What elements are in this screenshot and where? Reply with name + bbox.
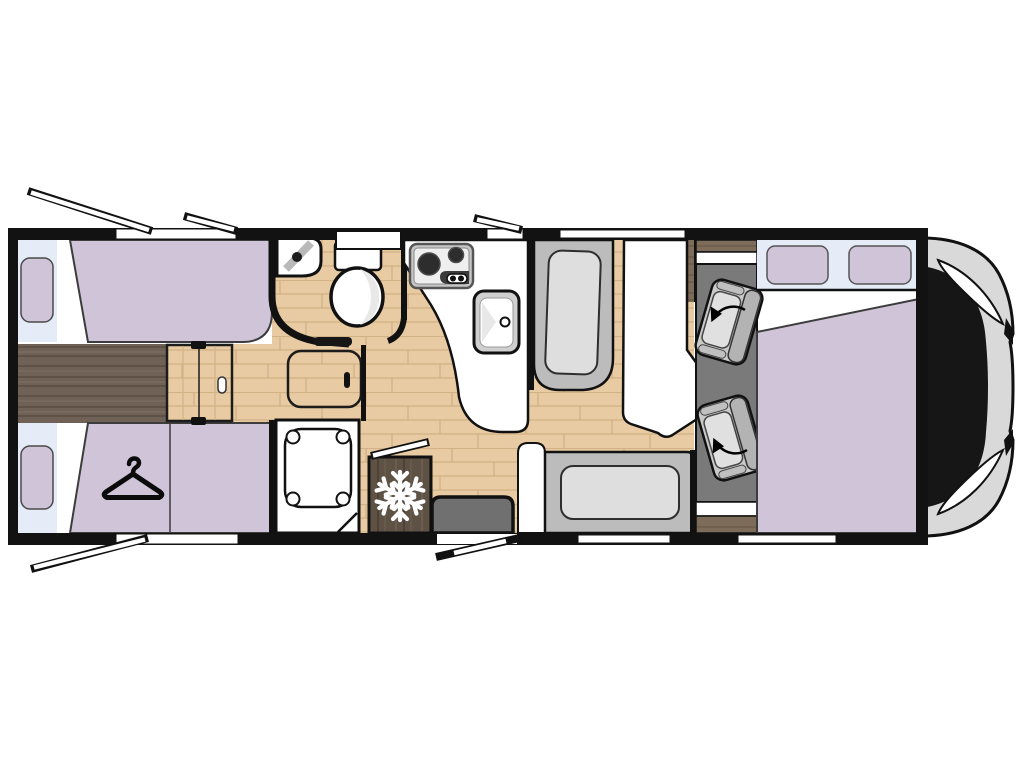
window-slit (116, 229, 236, 239)
window-slit (738, 535, 836, 543)
door-rail (191, 341, 206, 349)
burner-large (418, 253, 440, 275)
entry-step (432, 497, 513, 533)
hatch-handle (344, 372, 350, 388)
partition-wall (361, 345, 366, 421)
wall-rear (8, 228, 18, 545)
window-slit (578, 535, 670, 543)
bench-rear-cushion (561, 466, 679, 519)
shower-corner (337, 493, 350, 506)
shower-corner (337, 431, 350, 444)
cab-front (922, 238, 1013, 536)
wall-front (916, 228, 928, 545)
bathroom-door-end (314, 337, 352, 346)
stove (410, 244, 473, 288)
shower-corner (287, 493, 300, 506)
toilet (331, 242, 383, 326)
fridge (369, 457, 431, 533)
faucet (292, 252, 302, 262)
bench-front-cushion (545, 250, 601, 375)
door-handle (218, 377, 226, 393)
pillow (21, 446, 53, 509)
cab-door-bottom (696, 502, 757, 516)
faucet (501, 318, 510, 327)
bench-side-panel (518, 443, 545, 533)
overcab-pillow (767, 246, 828, 284)
cab-door-top (696, 252, 757, 264)
overcab-bed (757, 240, 919, 533)
dash-shelf-top (696, 240, 757, 252)
shower-corner (287, 431, 300, 444)
floorplan-canvas (0, 0, 1024, 768)
bed-bottom (70, 423, 272, 533)
shower (269, 420, 359, 533)
bed-top (70, 240, 272, 342)
motorhome-floorplan (0, 0, 1024, 768)
sliding-door (167, 341, 232, 425)
door-rail (191, 417, 206, 425)
pillow (21, 258, 53, 322)
overcab-pillow (849, 246, 911, 284)
dash-shelf-bottom (696, 516, 757, 533)
corner-sink (277, 238, 321, 276)
window-slit (560, 230, 685, 238)
bed-step-walkway (16, 344, 167, 423)
kitchen-sink (474, 291, 519, 353)
window-open-bar (28, 191, 152, 231)
burner-small (449, 248, 464, 263)
bathroom-window-shelf (336, 231, 401, 249)
cab (693, 240, 766, 533)
overcab-mattress (757, 299, 919, 533)
